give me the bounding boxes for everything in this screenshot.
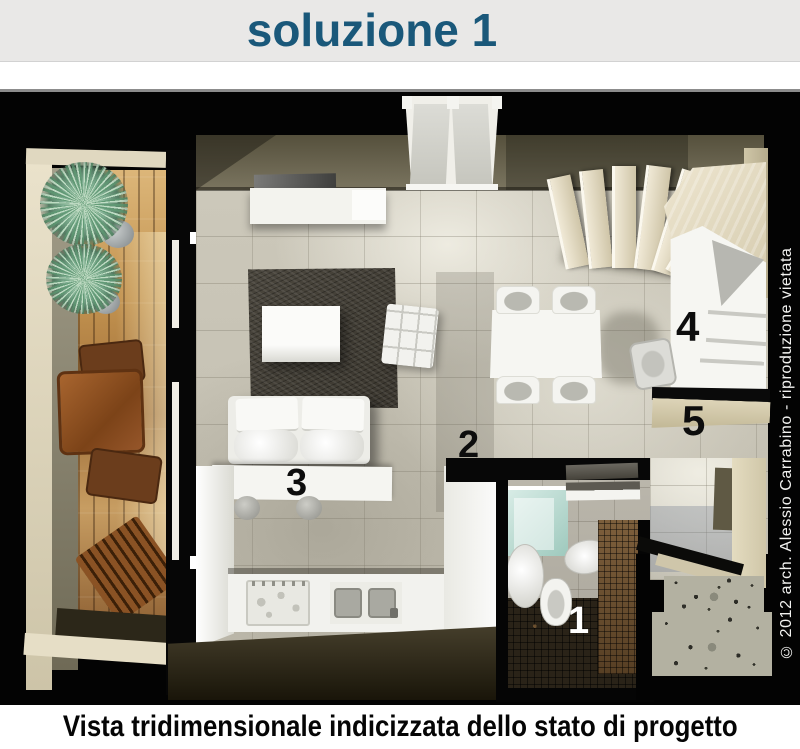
page: soluzione 1 xyxy=(0,0,800,749)
window-post xyxy=(402,96,412,109)
sofa-back-cushion-right xyxy=(301,397,364,433)
window-sill-1 xyxy=(172,240,179,328)
cooktop-knobs xyxy=(252,581,308,586)
window-pane-left xyxy=(410,104,450,184)
bathroom-mosaic-wall xyxy=(598,520,640,674)
floor-plan-rendering: 1 2 3 4 5 © 2012 arch. Alessio Carrabino… xyxy=(0,92,800,705)
dining-chair xyxy=(496,376,540,404)
dining-chair xyxy=(496,286,540,314)
potted-plant-2 xyxy=(46,244,122,314)
index-label-4: 4 xyxy=(676,306,699,348)
bathroom-door xyxy=(566,463,638,481)
kitchen-sink xyxy=(330,582,402,624)
window-post xyxy=(492,96,502,109)
sink-basin-left xyxy=(334,588,362,618)
sideboard-module xyxy=(352,190,386,220)
index-label-3: 3 xyxy=(286,464,307,502)
washbasin xyxy=(506,544,544,608)
caption-bar: Vista tridimensionale indicizzata dello … xyxy=(0,705,800,749)
bathroom-vanity-shelf xyxy=(566,481,640,500)
dining-table xyxy=(490,310,602,378)
window-sill-2 xyxy=(172,382,179,560)
title-bar: soluzione 1 xyxy=(0,0,800,62)
sofa-back-cushion-left xyxy=(235,397,298,433)
window-sill xyxy=(406,184,498,190)
bathroom-wall-left xyxy=(496,480,508,696)
page-title: soluzione 1 xyxy=(0,0,772,60)
entry-terrazzo-landing xyxy=(652,612,772,676)
index-label-1: 1 xyxy=(568,602,589,640)
tall-window xyxy=(396,96,508,190)
caption-text: Vista tridimensionale indicizzata dello … xyxy=(63,710,738,744)
shower-tray xyxy=(514,498,554,550)
index-label-2: 2 xyxy=(458,426,479,464)
armchair xyxy=(381,303,439,368)
bathroom-wall-bottom xyxy=(496,688,652,702)
sink-faucet xyxy=(390,608,398,618)
dining-chair xyxy=(552,286,596,314)
office-chair xyxy=(628,337,678,392)
cooktop xyxy=(246,580,310,626)
balcony-wood-table xyxy=(57,369,146,456)
divider-band xyxy=(0,62,800,92)
index-label-5: 5 xyxy=(682,400,705,442)
balcony-chair-bottom xyxy=(85,447,163,505)
coffee-table xyxy=(262,306,340,362)
copyright-credit: © 2012 arch. Alessio Carrabino - riprodu… xyxy=(778,100,796,660)
window-pane-right xyxy=(452,104,492,184)
window-post xyxy=(447,96,459,109)
sofa-seat-cushion-left xyxy=(234,430,298,462)
sofa-seat-cushion-right xyxy=(300,430,364,462)
dining-chair xyxy=(552,376,596,404)
balcony-outer-wall-left xyxy=(26,160,52,690)
entry-terrazzo-step xyxy=(664,576,764,614)
potted-plant-1 xyxy=(40,162,128,246)
stool-1 xyxy=(234,496,260,520)
stair-step xyxy=(612,166,636,268)
